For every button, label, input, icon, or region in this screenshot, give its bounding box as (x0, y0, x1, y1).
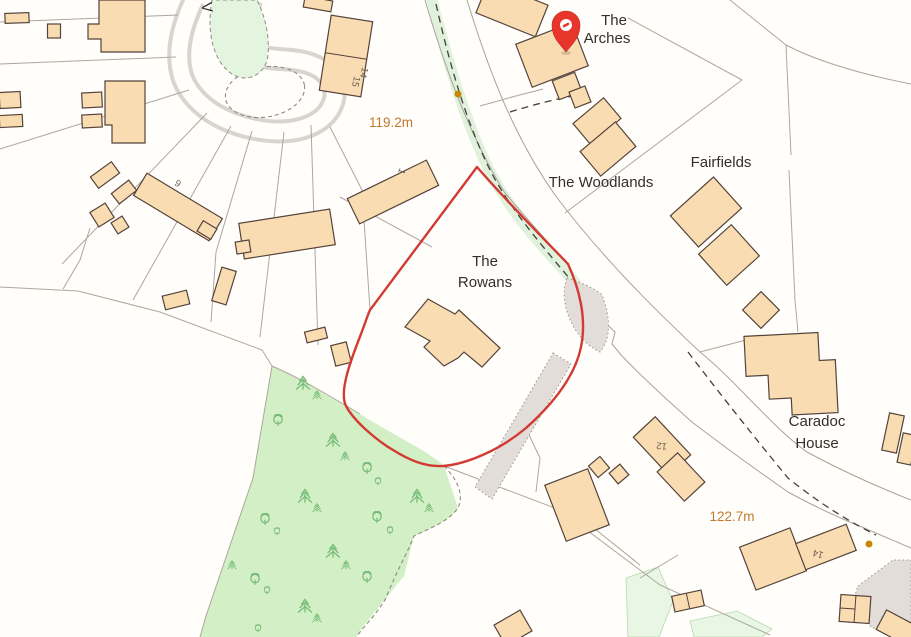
building (0, 114, 23, 127)
elevation-label: 119.2m (369, 115, 413, 130)
property-map[interactable]: The Arches The Woodlands Fairfields The … (0, 0, 911, 637)
survey-dot (866, 541, 873, 548)
label-the-arches-line2: Arches (584, 30, 631, 47)
survey-dot (455, 91, 462, 98)
label-fairfields: Fairfields (691, 154, 752, 171)
building (5, 13, 29, 24)
building (235, 240, 251, 254)
building (82, 114, 103, 128)
street-name-partial: V (197, 1, 215, 13)
label-caradoc-house-line1: Caradoc (789, 413, 846, 430)
label-the-arches-line1: The (601, 12, 627, 29)
map-canvas[interactable]: The Arches The Woodlands Fairfields The … (0, 0, 911, 637)
label-the-woodlands: The Woodlands (549, 174, 654, 191)
label-the-rowans-line2: Rowans (458, 274, 512, 291)
label-the-rowans-line1: The (472, 253, 498, 270)
building (0, 91, 21, 108)
building (48, 24, 61, 38)
elevation-label: 122.7m (709, 509, 754, 524)
building (82, 92, 103, 108)
plot-number: 12 (656, 439, 668, 451)
label-caradoc-house-line2: House (795, 435, 838, 452)
